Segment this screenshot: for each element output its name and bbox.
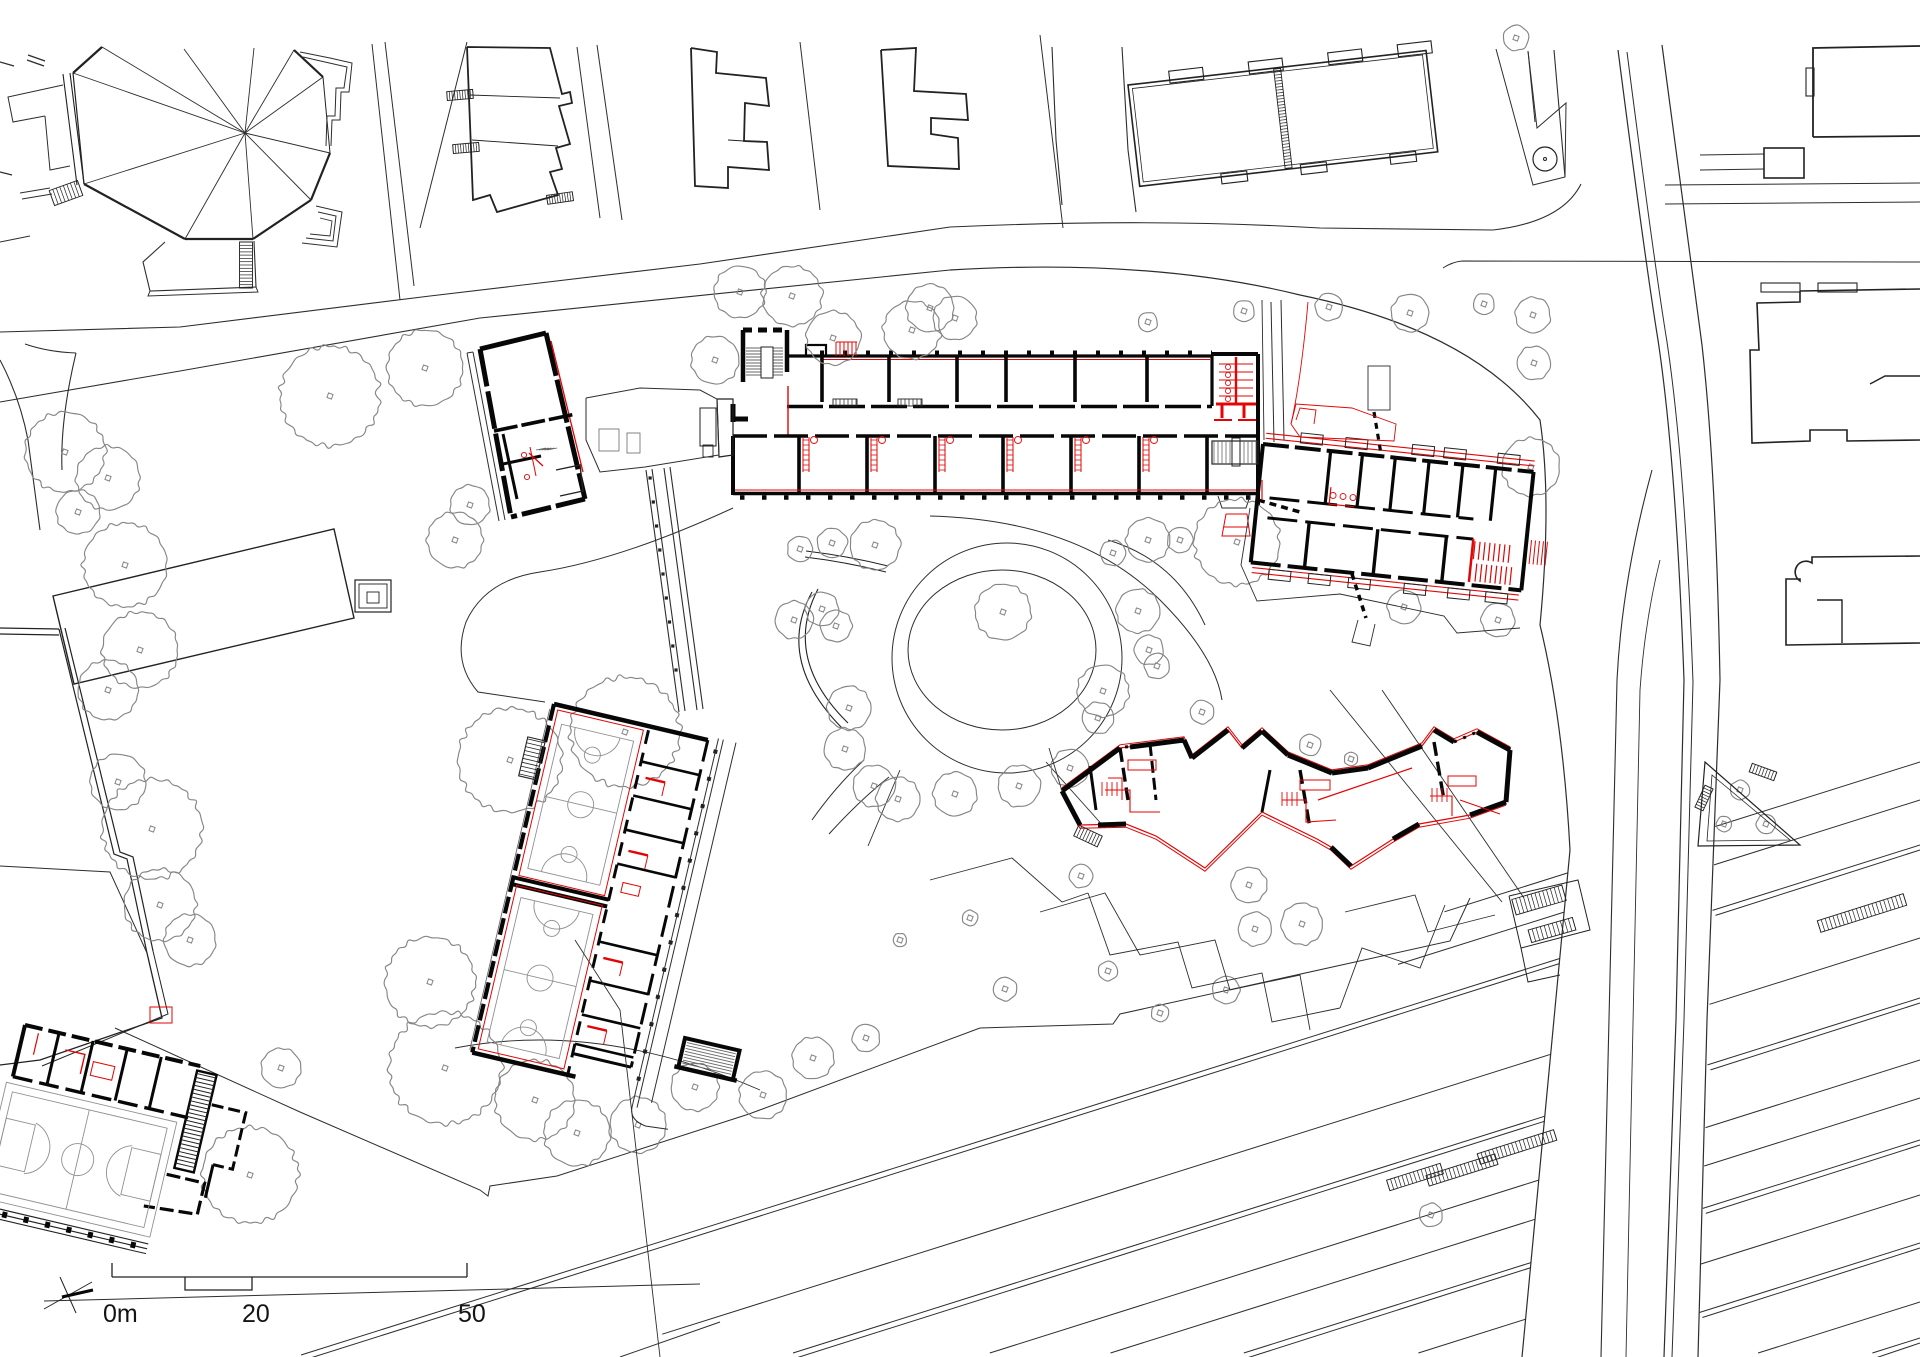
svg-text:20: 20: [242, 1300, 270, 1328]
svg-text:50: 50: [458, 1300, 486, 1328]
svg-text:0m: 0m: [103, 1300, 138, 1328]
